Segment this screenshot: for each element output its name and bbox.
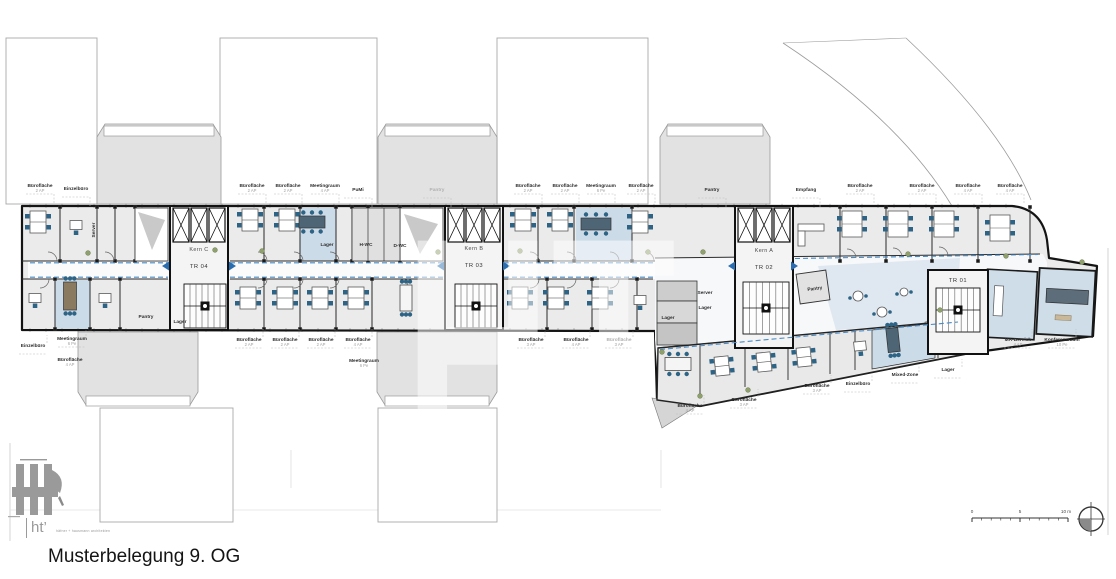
meeting-table <box>299 210 325 233</box>
svg-text:Kern A: Kern A <box>755 248 774 254</box>
room-label: Bürofläche2 AP <box>307 329 335 348</box>
architect-firm-name: häfner + hausmann architekten <box>56 529 110 533</box>
svg-text:3 AP: 3 AP <box>615 342 624 347</box>
room-label: Bürofläche2 AP <box>908 183 936 203</box>
plant-icon <box>698 394 703 399</box>
room-label: Meetingraum6 Pe <box>349 358 379 368</box>
svg-text:2 AP: 2 AP <box>245 342 254 347</box>
room-label: Lager <box>173 319 186 325</box>
plant-icon <box>1080 260 1085 265</box>
svg-text:2 AP: 2 AP <box>36 188 45 193</box>
svg-text:2 AP: 2 AP <box>317 342 326 347</box>
svg-text:6 Pe: 6 Pe <box>360 363 369 368</box>
room-label: Bürofläche2 AP <box>846 183 874 203</box>
svg-text:Lager: Lager <box>661 315 674 321</box>
svg-text:6 Pe: 6 Pe <box>597 188 606 193</box>
svg-text:4 AP: 4 AP <box>1006 188 1015 193</box>
room-label: Bürofläche4 AP <box>996 183 1024 203</box>
svg-text:TR 04: TR 04 <box>190 264 209 270</box>
svg-text:4 AP: 4 AP <box>66 362 75 367</box>
svg-text:4 AP: 4 AP <box>572 342 581 347</box>
svg-text:2 AP: 2 AP <box>524 188 533 193</box>
svg-text:2 AP: 2 AP <box>248 188 257 193</box>
svg-text:3 AP: 3 AP <box>740 402 749 407</box>
svg-text:Lager: Lager <box>698 305 711 311</box>
svg-text:2 AP: 2 AP <box>637 188 646 193</box>
room-label: Bürofläche2 AP <box>235 329 263 348</box>
watermark-text: HT <box>404 173 676 526</box>
conference-block <box>984 265 1096 343</box>
scale-bar: 0510 m <box>971 509 1072 522</box>
plant-icon <box>938 308 943 313</box>
svg-text:4 AP: 4 AP <box>354 342 363 347</box>
svg-text:2 AP: 2 AP <box>918 188 927 193</box>
room-label: D-WC <box>393 243 407 249</box>
svg-text:4 AP: 4 AP <box>686 408 695 413</box>
svg-text:TR 02: TR 02 <box>755 265 773 271</box>
core-label: TR 01 <box>949 278 967 284</box>
site-arc-lines <box>783 38 1031 206</box>
room-label: Server <box>91 222 97 237</box>
svg-text:TR 03: TR 03 <box>465 263 483 269</box>
sheet-title: Musterbelegung 9. OG <box>48 546 240 568</box>
svg-text:2 AP: 2 AP <box>284 188 293 193</box>
svg-text:Lager: Lager <box>941 367 954 373</box>
svg-text:6 Pe: 6 Pe <box>68 341 77 346</box>
room-label: Lager <box>934 359 962 378</box>
svg-text:Pantry: Pantry <box>139 314 154 320</box>
svg-text:Kern C: Kern C <box>189 247 208 253</box>
room-label: Pantry <box>139 314 154 320</box>
svg-text:Einzelbüro: Einzelbüro <box>846 381 871 387</box>
svg-text:10 Pe: 10 Pe <box>1057 342 1069 347</box>
plant-icon <box>86 251 91 256</box>
svg-text:Kern B: Kern B <box>465 246 484 252</box>
room-label: Bürofläche4 AP <box>954 183 982 203</box>
svg-text:H-WC: H-WC <box>359 242 373 248</box>
meeting-table <box>63 276 76 315</box>
floor-plan-drawing: HT Bürofläche2 APEinzelbüroBürofläche2 A… <box>0 0 1116 579</box>
plant-icon <box>213 248 218 253</box>
svg-text:2 AP: 2 AP <box>281 342 290 347</box>
plant-icon <box>1004 254 1009 259</box>
room-label: Server <box>698 290 713 296</box>
svg-text:Mixed-Zone: Mixed-Zone <box>892 372 919 378</box>
svg-text:Server: Server <box>91 222 97 237</box>
svg-text:4 AP: 4 AP <box>321 188 330 193</box>
core <box>735 206 793 348</box>
round-table <box>900 288 908 296</box>
round-table <box>877 307 887 317</box>
scale-tick-label: 0 <box>971 509 974 514</box>
svg-text:Pantry: Pantry <box>430 187 445 193</box>
svg-text:4 AP: 4 AP <box>1014 342 1023 347</box>
svg-text:PuMi: PuMi <box>352 187 363 193</box>
room-label: Lager <box>320 242 333 248</box>
svg-text:3 AP: 3 AP <box>527 342 536 347</box>
room-label: Bürofläche4 AP <box>344 329 372 348</box>
room-label: H-WC <box>359 242 373 248</box>
room-label: Lager <box>661 315 674 321</box>
round-table <box>853 291 863 301</box>
plant-icon <box>906 252 911 257</box>
watermark: HT <box>404 173 676 526</box>
svg-text:D-WC: D-WC <box>393 243 407 249</box>
scale-tick-label: 5 <box>1019 509 1022 514</box>
north-arrow-icon <box>1077 502 1105 536</box>
svg-text:3 AP: 3 AP <box>813 388 822 393</box>
room-label: Lager <box>698 305 711 311</box>
plant-icon <box>746 388 751 393</box>
svg-text:Server: Server <box>698 290 713 296</box>
room-label: Bürofläche2 AP <box>271 329 299 348</box>
scale-tick-label: 10 m <box>1061 509 1071 514</box>
svg-text:Einzelbüro: Einzelbüro <box>21 343 46 349</box>
plant-icon <box>260 249 265 254</box>
svg-text:Lager: Lager <box>320 242 333 248</box>
svg-text:2 AP: 2 AP <box>561 188 570 193</box>
svg-text:2 AP: 2 AP <box>856 188 865 193</box>
svg-text:4 AP: 4 AP <box>964 188 973 193</box>
svg-text:Einzelbüro: Einzelbüro <box>64 186 89 192</box>
svg-text:Empfang: Empfang <box>796 187 817 193</box>
drawing-sheet: HT Bürofläche2 APEinzelbüroBürofläche2 A… <box>0 0 1116 579</box>
svg-text:Lager: Lager <box>173 319 186 325</box>
plant-icon <box>701 250 706 255</box>
room-label: Empfang <box>792 187 820 207</box>
architect-logo: ht’ <box>26 518 47 538</box>
svg-text:TR 01: TR 01 <box>949 278 967 284</box>
room-label: Einzelbüro <box>19 335 47 354</box>
svg-text:Pantry: Pantry <box>705 187 720 193</box>
keyplan-icon <box>8 459 64 517</box>
reception-desk <box>798 224 824 231</box>
